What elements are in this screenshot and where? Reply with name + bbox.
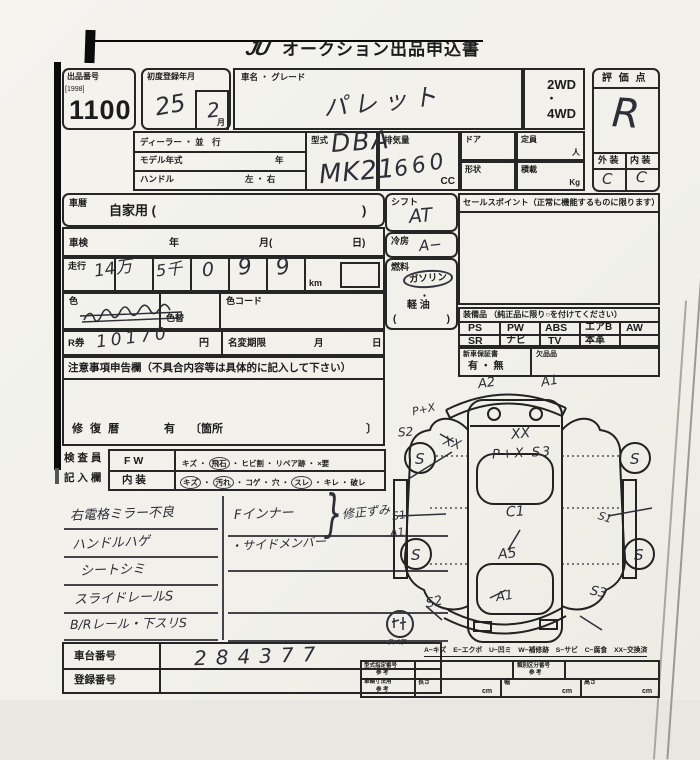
fw-items: キズ ・ 飛石 ・ ヒビ割 ・ リペア跡 ・ ×要 xyxy=(182,457,329,470)
shaken-row: 車検 年 月( 日) xyxy=(62,227,385,257)
mark-side-right-s1: S1 xyxy=(597,510,614,525)
dims-size-label: 車輌寸法用 xyxy=(364,680,392,686)
recycle-ticket-label: R券 xyxy=(68,339,84,349)
note-right-line-1: Fインナー xyxy=(234,507,294,522)
exterior-label: 外 装 xyxy=(598,156,619,165)
notes-left-rule5 xyxy=(64,639,218,641)
mileage-digit4-handwriting: 9 xyxy=(275,256,292,280)
month-suffix-label: 月 xyxy=(217,119,225,127)
mileage-digit2-handwriting: 0 xyxy=(201,261,214,281)
spec-table: ディーラー ・ 並 行 モデル年式 年 ハンドル 左 ・ 右 型式 DBA MK… xyxy=(133,131,378,191)
shape-label: 形状 xyxy=(465,166,481,174)
sales-point-box: セールスポイント（正常に機能するものに限ります） xyxy=(458,193,660,305)
item-separator: ・ xyxy=(264,459,276,468)
note-line-5: B/Rレール・下スリS xyxy=(70,617,187,632)
dims-c3 xyxy=(564,662,566,678)
color-div2 xyxy=(219,294,221,328)
history-paren-close: ) xyxy=(362,204,366,217)
sales-header-divider xyxy=(460,211,658,213)
drive-4wd-label: 4WD xyxy=(547,107,576,120)
equip-ps: PS xyxy=(468,323,482,334)
recycle-ticket-value-handwriting: 10170 xyxy=(95,326,171,352)
caution-header-divider xyxy=(64,378,383,380)
form-title: オークション出品申込書 xyxy=(282,41,480,58)
displacement-label: 排気量 xyxy=(384,136,410,145)
equip-abs: ABS xyxy=(545,323,567,334)
fuel-paren-open: ( xyxy=(393,315,396,325)
equip-pw: PW xyxy=(507,323,524,334)
displacement-box: 排気量 660 CC xyxy=(378,131,460,191)
equip-c4 xyxy=(619,321,621,345)
ac-handwriting: A− xyxy=(418,237,442,254)
drive-type-box: 2WD ・ 4WD xyxy=(523,68,585,130)
handle-label: ハンドル xyxy=(140,175,174,184)
fuel-diesel-label: 軽 油 xyxy=(407,301,430,311)
load-cell: 積載 Kg xyxy=(516,161,585,191)
equip-airbag: エアB xyxy=(585,323,612,333)
color-row: 色 色替 色コード xyxy=(62,292,385,330)
int-item-3: 穴 xyxy=(272,478,280,487)
ac-label: 冷房 xyxy=(391,237,409,246)
lot-number-label: 出品番号 xyxy=(67,73,99,81)
inspector-row-divider xyxy=(110,470,384,472)
mileage-div5 xyxy=(266,259,268,290)
handle-options: 左 ・ 右 xyxy=(245,175,275,184)
type-code-label: 型式 xyxy=(311,136,328,145)
wheel-mark-rr: S xyxy=(634,546,644,564)
dims-class-number-label: 類別区分番号 xyxy=(517,664,550,670)
chassis-value-handwriting: 284377 xyxy=(194,644,325,669)
wheel-mark-fr: S xyxy=(630,450,640,468)
int-item-0: キズ xyxy=(180,476,201,489)
first-registration-month-box: 2 月 xyxy=(195,90,229,130)
dims-c4 xyxy=(500,678,502,696)
color-label: 色 xyxy=(69,297,78,306)
dims-c1 xyxy=(414,662,416,696)
mark-fl-xx: XX xyxy=(441,435,462,453)
shaken-year-label: 年 xyxy=(169,239,179,249)
first-registration-box: 初度登録年月 25 2 月 xyxy=(141,68,231,130)
item-separator: ・ xyxy=(260,478,272,487)
item-separator: ・ xyxy=(306,459,318,468)
equip-c2 xyxy=(539,321,541,345)
fw-item-0: キズ xyxy=(182,459,197,468)
note-line-4: スライドレールS xyxy=(74,590,174,606)
item-separator: ・ xyxy=(312,478,324,487)
lot-year-tag: [1998] xyxy=(65,86,84,93)
equip-c1 xyxy=(499,321,501,345)
car-name-box: 車名 ・ グレード パレット xyxy=(233,68,523,130)
missing-items-label: 欠品品 xyxy=(536,351,557,358)
int-item-1: 汚れ xyxy=(213,476,234,489)
note-right-line-2: ・サイドメンバー xyxy=(230,535,327,552)
chassis-col-divider xyxy=(159,644,161,692)
inspector-table: FW 内 装 キズ ・ 飛石 ・ ヒビ割 ・ リペア跡 ・ ×要 キズ ・ 汚れ… xyxy=(108,449,386,491)
capacity-cell: 定員 人 xyxy=(516,131,585,161)
ac-cell: 冷房 A− xyxy=(385,232,458,258)
rating-col-divider xyxy=(625,152,627,190)
item-separator: ・ xyxy=(197,459,209,468)
spec-col-divider xyxy=(305,133,307,189)
warranty-options: 有 ・ 無 xyxy=(468,362,504,372)
mark-hood-xx: XX xyxy=(510,426,531,442)
repair-location-close: 〕 xyxy=(366,424,377,435)
mark-center-a5: A5 xyxy=(497,546,517,562)
lot-number-value: 1100 xyxy=(69,97,132,124)
dims-width-label: 幅 xyxy=(504,680,510,686)
spec-row-divider1 xyxy=(135,151,305,153)
fuel-cell: 燃料 ガソリン ・ 軽 油 ( ) xyxy=(385,258,458,330)
notes-column-divider xyxy=(222,496,224,640)
fw-item-2: ヒビ割 xyxy=(241,459,264,468)
color-alt-label: 色替 xyxy=(166,314,184,323)
fw-label: FW xyxy=(124,456,146,467)
capacity-unit: 人 xyxy=(572,149,580,157)
exterior-value-handwriting: C xyxy=(602,172,612,187)
int-item-4: スレ xyxy=(291,476,312,489)
drive-2wd-label: 2WD xyxy=(547,78,576,91)
dealer-parallel-label: ディーラー ・ 並 行 xyxy=(140,138,221,147)
note-line-2: ハンドルハゲ xyxy=(72,535,151,552)
dimensions-table: 型式指定番号 参 考 類別区分番号 参 考 車輌寸法用 参 考 長さ cm 幅 … xyxy=(360,660,660,698)
mileage-div2 xyxy=(152,259,154,290)
color-code-label: 色コード xyxy=(226,297,262,306)
interior-value-handwriting: C xyxy=(635,169,647,185)
displacement-unit: CC xyxy=(441,177,455,187)
mark-rear-left-s2: S2 xyxy=(425,594,444,610)
mark-center-c1: C1 xyxy=(506,504,526,519)
mark-side-left-s1: S1 xyxy=(391,509,406,522)
rename-month-label: 月 xyxy=(314,339,324,349)
fw-item-4: ×要 xyxy=(317,459,329,468)
scan-artifact-corner xyxy=(84,30,95,63)
scan-artifact-leftbar-tail xyxy=(55,468,59,484)
shaken-day-label: 日) xyxy=(352,239,365,249)
notes-left-rule1 xyxy=(64,528,218,530)
wheel-mark-rl: S xyxy=(411,546,421,564)
rating-divider xyxy=(594,87,658,89)
mileage-digit0-handwriting: 14万 xyxy=(93,258,134,280)
equip-leather: 本革 xyxy=(585,336,605,346)
paper-background: JU オークション出品申込書 出品番号 [1998] 1100 初度登録年月 2… xyxy=(0,0,700,700)
item-separator: ・ xyxy=(201,478,213,487)
int-item-6: 破レ xyxy=(351,478,366,487)
rating-value-handwriting: R xyxy=(611,93,642,135)
mark-rear-a1: A1 xyxy=(495,589,514,604)
rename-day-label: 日 xyxy=(372,339,382,349)
note-line-1: 右電格ミラー不良 xyxy=(70,506,174,523)
notes-left-rule2 xyxy=(64,556,218,558)
dims-height-cm: cm xyxy=(642,688,652,695)
first-registration-year-handwriting: 25 xyxy=(153,91,187,120)
registration-label: 登録番号 xyxy=(74,675,116,686)
notes-right-rule2 xyxy=(228,570,448,572)
fuel-gasoline-circled: ガソリン xyxy=(402,268,453,289)
ju-logo: JU xyxy=(244,39,271,59)
notes-left-rule4 xyxy=(64,612,218,614)
mileage-div3 xyxy=(190,259,192,290)
scan-artifact-leftbar xyxy=(54,62,61,470)
int-item-2: コゲ xyxy=(245,478,260,487)
caution-header: 注意事項申告欄（不具合内容等は具体的に記入して下さい） xyxy=(68,363,351,374)
fw-item-3: リペア跡 xyxy=(276,459,306,468)
warranty-row: 新車保証書 有 ・ 無 欠品品 xyxy=(458,347,660,377)
inspector-col-divider xyxy=(174,451,176,489)
drive-dot: ・ xyxy=(546,94,557,105)
rticket-divider xyxy=(221,332,223,354)
dims-size-ref: 参 考 xyxy=(376,688,389,694)
mark-fl-px: P+X xyxy=(411,402,436,418)
dims-height-label: 高さ xyxy=(584,680,596,686)
car-name-handwriting: パレット xyxy=(322,84,444,120)
mark-fl-s2: S2 xyxy=(398,425,414,438)
auction-sheet-scan: { "scan": {"title_logo": "JU", "title": … xyxy=(0,0,700,700)
note-right-brace: } xyxy=(324,490,343,541)
equipment-box: 装備品 （純正品に限り○を付けてください） PS PW ABS エアB AW S… xyxy=(458,307,660,347)
mark-front-right: A1 xyxy=(540,374,559,390)
dims-c2 xyxy=(512,662,514,678)
shaken-month-label: 月( xyxy=(259,239,272,249)
repair-location-label: 〔箇所 xyxy=(190,424,223,435)
door-cell: ドア xyxy=(460,131,516,161)
interior-row-label: 内 装 xyxy=(122,475,146,486)
model-year-unit: 年 xyxy=(275,156,284,165)
rename-deadline-label: 名変期限 xyxy=(228,339,266,349)
warranty-label: 新車保証書 xyxy=(463,351,498,358)
equip-navi: ナビ xyxy=(506,336,526,346)
fuel-paren-close: ) xyxy=(447,315,450,325)
mark-rear-right-s3: S3 xyxy=(589,584,608,600)
car-name-label: 車名 ・ グレード xyxy=(241,73,305,82)
recycle-ticket-row: R券 10170 円 名変期限 月 日 xyxy=(62,330,385,356)
load-unit: Kg xyxy=(569,179,580,187)
item-separator: ・ xyxy=(234,478,246,487)
first-registration-label: 初度登録年月 xyxy=(147,73,195,81)
inspector-label-line1: 検 査 員 xyxy=(64,453,101,464)
repair-history-label: 修 復 暦 xyxy=(72,424,121,435)
wheel-mark-fl: S xyxy=(415,450,425,468)
damage-legend: A−キズ E−エクボ U−凹ミ W−補修跡 S−サビ C−腐食 XX−交換済 xyxy=(424,648,647,657)
mileage-digit3-handwriting: 9 xyxy=(237,256,253,279)
mileage-extra-box xyxy=(340,262,380,288)
equip-sr: SR xyxy=(468,336,483,347)
history-value: 自家用 ( xyxy=(109,204,156,217)
inspector-label-line2: 記 入 欄 xyxy=(64,473,101,484)
fuel-label: 燃料 xyxy=(391,263,409,272)
load-label: 積載 xyxy=(521,166,537,174)
shaken-label: 車検 xyxy=(69,239,88,249)
equip-tv: TV xyxy=(548,336,561,347)
fw-item-1: 飛石 xyxy=(209,457,230,470)
spec-row-divider2 xyxy=(135,170,305,172)
mileage-row: 走行 km 14万 5千 0 9 9 xyxy=(62,257,385,292)
mark-side-left-a1: A1 xyxy=(389,526,405,538)
dims-length-label: 長さ xyxy=(418,680,430,686)
item-separator: ・ xyxy=(230,459,242,468)
mileage-digit1-handwriting: 5千 xyxy=(155,261,183,280)
capacity-label: 定員 xyxy=(521,136,537,144)
dims-c5 xyxy=(580,678,582,696)
shift-handwriting: AT xyxy=(408,206,433,227)
equip-aw: AW xyxy=(626,323,643,334)
sales-point-header: セールスポイント（正常に機能するものに限ります） xyxy=(463,199,660,207)
door-label: ドア xyxy=(465,136,481,144)
spare-stamp xyxy=(386,610,414,638)
caution-box: 注意事項申告欄（不具合内容等は具体的に記入して下さい） 修 復 暦 有 〔箇所 … xyxy=(62,356,385,446)
note-line-3: シートシミ xyxy=(80,563,145,578)
color-div1 xyxy=(159,294,161,328)
mark-front-left: A2 xyxy=(477,376,496,391)
history-box: 車暦 自家用 ( ) xyxy=(62,193,385,227)
mileage-label: 走行 xyxy=(68,262,86,271)
repair-yes-label: 有 xyxy=(164,424,175,435)
dims-type-number-label: 型式指定番号 xyxy=(364,664,397,670)
chassis-label: 車台番号 xyxy=(74,651,116,662)
note-right-result: 修正ずみ xyxy=(342,504,391,521)
mileage-unit: km xyxy=(309,279,322,288)
rating-box: 評 価 点 R 外 装 内 装 C C xyxy=(592,68,660,192)
mileage-div6 xyxy=(304,259,306,290)
scan-artifact-fold1 xyxy=(666,141,700,760)
model-year-label: モデル年式 xyxy=(140,156,183,165)
dims-length-cm: cm xyxy=(482,688,492,695)
yen-label: 円 xyxy=(199,339,209,349)
spare-stamp-scribble xyxy=(390,614,410,634)
lot-number-box: 出品番号 [1998] 1100 xyxy=(62,68,136,130)
rating-label: 評 価 点 xyxy=(602,74,648,84)
history-label: 車暦 xyxy=(69,199,87,208)
mark-hood-pxs3: P+X S3 xyxy=(492,445,553,461)
item-separator: ・ xyxy=(280,478,292,487)
mileage-div4 xyxy=(228,259,230,290)
shape-cell: 形状 xyxy=(460,161,516,191)
shift-cell: シフト AT xyxy=(385,193,458,232)
equipment-header: 装備品 （純正品に限り○を付けてください） xyxy=(463,311,622,319)
spare-label: スペア xyxy=(388,640,407,647)
notes-right-rule3 xyxy=(228,612,448,614)
dims-class-ref: 参 考 xyxy=(529,671,542,677)
warranty-divider xyxy=(530,349,532,375)
notes-left-rule3 xyxy=(64,584,218,586)
dims-type-ref: 参 考 xyxy=(376,671,389,677)
equip-c3 xyxy=(579,321,581,345)
dims-width-cm: cm xyxy=(562,688,572,695)
interior-label: 内 装 xyxy=(630,156,651,165)
